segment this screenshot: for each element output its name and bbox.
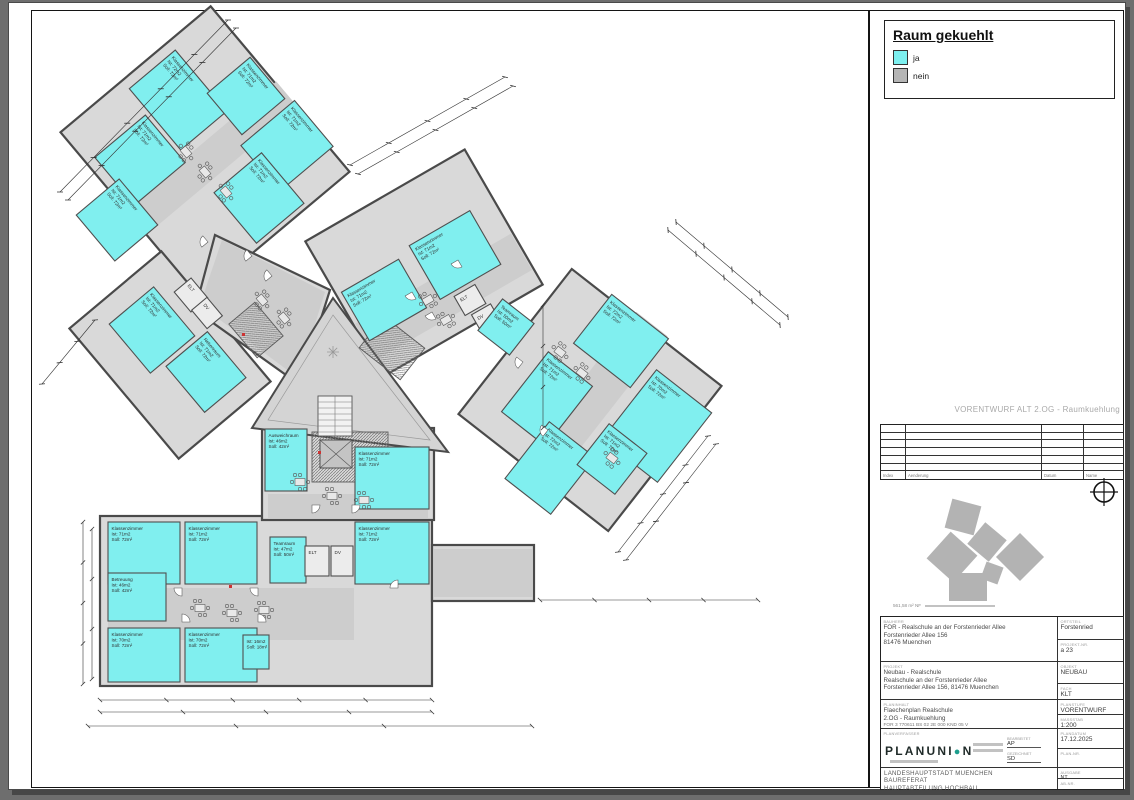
discipline-label: FACH [1061, 686, 1124, 691]
room-label: Soll: 72m² [359, 537, 380, 542]
project-line: Realschule an der Forstenrieder Allee [884, 677, 1058, 685]
client-line: Forstenrieder Allee 156 [884, 632, 1058, 640]
issue-cell: AUSGABE NT [1057, 767, 1123, 778]
legend-swatch-uncooled [893, 68, 908, 83]
dimension-tick [510, 85, 516, 87]
room-label: Ist: 16m2 [247, 639, 266, 644]
phase-label: PLANSTUFE [1061, 702, 1124, 707]
date-label: PLANDATUM [1061, 731, 1124, 736]
dimension-tick [653, 521, 659, 522]
revision-col-divider [1041, 425, 1042, 479]
dimension-tick [615, 552, 621, 553]
drawing-sheet-viewport: KlassenzimmerIst: 72m2Soll: 72m²Klassenz… [0, 0, 1134, 800]
elevator [320, 440, 352, 468]
logo-dot-icon: ● [954, 746, 963, 758]
room-label: Soll: 42m² [269, 444, 290, 449]
room-label: Soll: 72m² [112, 643, 133, 648]
project-no-cell: PROJEKT-NR. a 23 [1057, 639, 1123, 661]
room-label: ELT [309, 550, 317, 555]
content-label: PLANINHALT [884, 702, 1058, 707]
date-cell: PLANDATUM 17.12.2025 [1057, 728, 1123, 748]
edited-field: BEARBEITET AP [1007, 737, 1041, 748]
room-label: Ist: 47m2 [274, 547, 293, 552]
drawn-value: SD [1007, 756, 1041, 763]
room-label: Ist: 71m2 [189, 532, 208, 537]
room: KlassenzimmerIst: 70m2Soll: 72m² [108, 628, 180, 682]
dimension-tick [386, 142, 392, 144]
plan-no-label: PLAN-NR. [1061, 751, 1124, 756]
room-label: Klassenzimmer [189, 632, 221, 637]
crosshair-icon [1090, 478, 1118, 506]
client-line: FOR - Realschule an der Forstenrieder Al… [884, 624, 1058, 632]
legend-item-nein: nein [893, 68, 1114, 83]
titleblock-owner-cell: LANDESHAUPTSTADT MUENCHEN BAUREFERAT HAU… [881, 767, 1057, 789]
legend-label-ja: ja [913, 53, 920, 63]
project-line: Neubau - Realschule [884, 669, 1058, 677]
dimension-tick [683, 482, 689, 483]
content-line: 2.OG - Raumkuehlung [884, 715, 1058, 723]
room-label: Ist: 70m2 [189, 638, 208, 643]
district-value: Forstenried [1061, 624, 1124, 631]
scale-cell: MASSSTAB 1:200 [1057, 714, 1123, 728]
dimension-chain [42, 320, 95, 384]
legend-swatch-cooled [893, 50, 908, 65]
revision-header-aenderung: Aenderung [908, 473, 929, 478]
room-label: DV [335, 550, 342, 555]
room-label: Klassenzimmer [359, 451, 391, 456]
discipline-cell: FACH KLT [1057, 683, 1123, 699]
room: KlassenzimmerIst: 71m2Soll: 72m² [355, 522, 429, 584]
ab-no-label: AB-NR. [1061, 781, 1124, 786]
panel-divider [868, 10, 870, 787]
project-no-value: a 23 [1061, 647, 1124, 654]
drawn-field: GEZEICHNET SD [1007, 752, 1041, 763]
room: TeamraumIst: 47m2Soll: 50m² [270, 537, 306, 583]
legend-title: Raum gekuehlt [893, 27, 1114, 43]
date-value: 17.12.2025 [1061, 736, 1124, 743]
plan-no-cell: PLAN-NR. [1057, 748, 1123, 767]
revision-row-divider [881, 447, 1123, 448]
object-value: NEUBAU [1061, 669, 1124, 676]
dimension-tick [425, 120, 431, 122]
revision-row-divider [881, 432, 1123, 433]
dimension-tick [683, 465, 689, 466]
revision-header-index: Index [883, 473, 893, 478]
room-label: Klassenzimmer [359, 526, 391, 531]
dimension-tick [713, 444, 719, 445]
room-label: Soll: 72m² [189, 643, 210, 648]
client-label: BAUHERR [884, 619, 1058, 624]
object-label: OBJEKT [1061, 664, 1124, 669]
phase-value: VORENTWURF [1061, 707, 1124, 714]
room-label: Ist: 71m2 [359, 532, 378, 537]
revision-col-divider [1083, 425, 1084, 479]
content-line: Flaechenplan Realschule [884, 707, 1058, 715]
dimension-tick [355, 173, 361, 175]
author-label: PLANVERFASSER [884, 731, 1058, 736]
edited-value: AP [1007, 741, 1041, 748]
dimension-tick [57, 362, 63, 363]
title-block: BAUHERR FOR - Realschule an der Forstenr… [880, 616, 1124, 790]
client-line: 81476 Muenchen [884, 639, 1058, 647]
titleblock-author-cell: PLANVERFASSER PLANUNI●N BEARBEITET AP GE… [881, 728, 1057, 767]
room-label: Ist: 71m2 [359, 457, 378, 462]
room-label: Soll: 50m² [274, 552, 295, 557]
logo-text: N [963, 744, 974, 758]
revision-row-divider [881, 470, 1123, 471]
stair [318, 396, 352, 436]
room: ELT [305, 546, 329, 576]
room-label: Ist: 70m2 [112, 638, 131, 643]
owner-line: LANDESHAUPTSTADT MUENCHEN [884, 770, 1057, 777]
project-line: Forstenrieder Allee 156, 81476 Muenchen [884, 684, 1058, 692]
dimension-tick [347, 164, 353, 166]
logo-text: PLANUNI [885, 744, 954, 758]
room-label: Soll: 72m² [189, 537, 210, 542]
dimension-tick [638, 523, 644, 524]
project-no-label: PROJEKT-NR. [1061, 642, 1124, 647]
room: KlassenzimmerIst: 71m2Soll: 72m² [185, 522, 257, 584]
dimension-tick [471, 107, 477, 109]
revision-row-divider [881, 463, 1123, 464]
titleblock-client-cell: BAUHERR FOR - Realschule an der Forstenr… [881, 617, 1057, 661]
revision-row-divider [881, 455, 1123, 456]
room-label: Ist: 46m2 [269, 439, 288, 444]
scale-label: MASSSTAB [1061, 717, 1124, 722]
dimension-tick [623, 560, 629, 561]
room-label: Soll: 42m² [112, 588, 133, 593]
revision-header-datum: Datum [1044, 473, 1056, 478]
room: BetreuungIst: 46m2Soll: 42m² [108, 573, 166, 621]
district-cell: ORTSTEIL Forstenried [1057, 617, 1123, 639]
room-label: Betreuung [112, 577, 134, 582]
legend-label-nein: nein [913, 71, 929, 81]
owner-line: HAUPTABTEILUNG HOCHBAU [884, 785, 1057, 792]
dimension-tick [74, 341, 80, 342]
phase-cell: PLANSTUFE VORENTWURF [1057, 699, 1123, 714]
room: Ist: 16m2Soll: 18m² [243, 635, 269, 669]
area-summary-caption: 561,58 m² NF [893, 603, 995, 608]
room-label: Soll: 72m² [359, 462, 380, 467]
dimension-tick [705, 436, 711, 437]
legend-box: Raum gekuehlt ja nein [884, 20, 1115, 99]
room-label: Ausweichraum [269, 433, 299, 438]
dimension-tick [92, 320, 98, 321]
legend-item-ja: ja [893, 50, 1114, 65]
dimension-tick [433, 129, 439, 131]
project-label: PROJEKT [884, 664, 1058, 669]
district-label: ORTSTEIL [1061, 619, 1124, 624]
room-label: Klassenzimmer [112, 526, 144, 531]
dimension-tick [39, 384, 45, 385]
ab-no-cell: AB-NR. [1057, 778, 1123, 789]
dimension-tick [660, 494, 666, 495]
room-label: Ist: 46m2 [112, 583, 131, 588]
titleblock-content-cell: PLANINHALT Flaechenplan Realschule 2.OG … [881, 699, 1057, 728]
room-label: Klassenzimmer [112, 632, 144, 637]
room: DV [331, 546, 353, 576]
room-label: Klassenzimmer [189, 526, 221, 531]
illegible-print [925, 605, 995, 608]
area-summary-value: 561,58 m² NF [893, 603, 921, 608]
titleblock-project-cell: PROJEKT Neubau - Realschule Realschule a… [881, 661, 1057, 699]
room-label: Ist: 71m2 [112, 532, 131, 537]
owner-line: BAUREFERAT [884, 777, 1057, 784]
issue-label: AUSGABE [1061, 770, 1124, 775]
dimension-tick [463, 98, 469, 100]
dimension-tick [394, 151, 400, 153]
key-plan [925, 495, 1075, 613]
room-label: Soll: 18m² [247, 645, 268, 650]
discipline-value: KLT [1061, 691, 1124, 698]
dimension-tick [502, 76, 508, 78]
revision-row-divider [881, 439, 1123, 440]
revision-table: Index Aenderung Datum Name [880, 424, 1124, 480]
plan-status-banner: VORENTWURF ALT 2.OG - Raumkuehlung [880, 405, 1120, 414]
illegible-print [890, 760, 938, 763]
illegible-print [973, 743, 1003, 746]
revision-col-divider [905, 425, 906, 479]
illegible-print [973, 749, 1003, 752]
room-label: Soll: 72m² [112, 537, 133, 542]
room-label: Teamraum [274, 541, 296, 546]
object-cell: OBJEKT NEUBAU [1057, 661, 1123, 683]
